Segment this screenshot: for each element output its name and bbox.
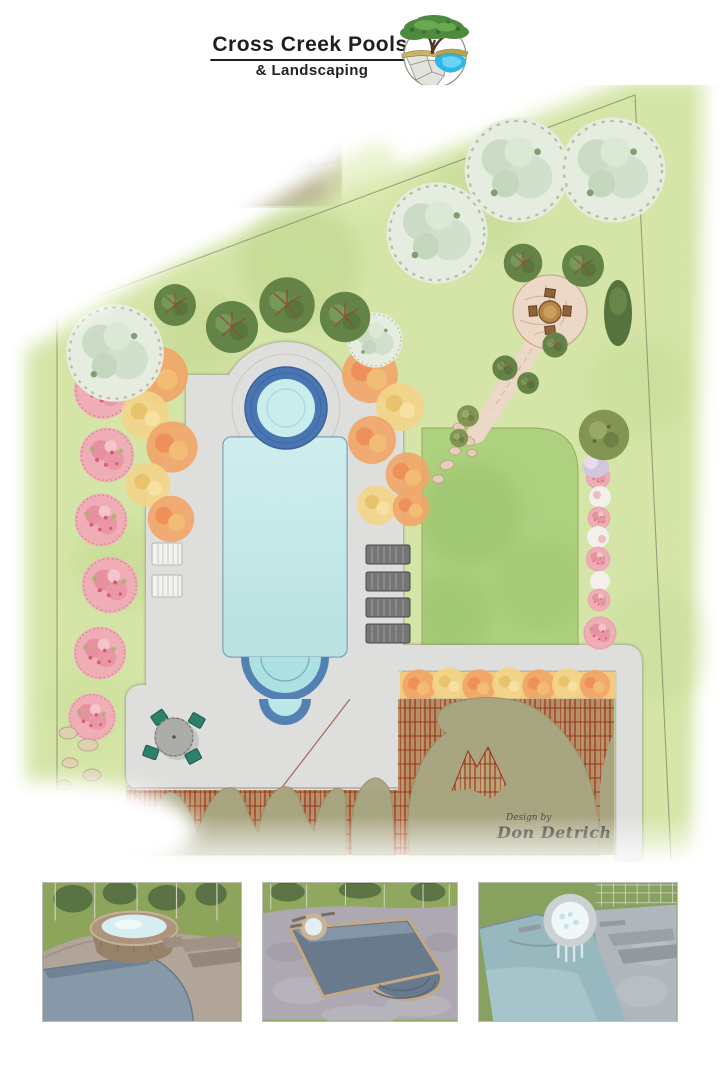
- render-spa-corner-view: [42, 882, 242, 1022]
- render-spa-corner-view-icon: [43, 883, 241, 1021]
- design-sheet: { "header": { "title": "Cross Creek Pool…: [0, 0, 720, 1080]
- company-logo: [388, 10, 482, 90]
- oak-tree-pond-flagstone-logo-icon: [388, 10, 482, 90]
- site-plan-drawing: Design by Don Detrich: [0, 85, 720, 885]
- brand-subtitle: & Landscaping: [210, 62, 413, 79]
- landscape-plan: Design by Don Detrich: [0, 85, 720, 885]
- brand-title: Cross Creek Pools: [210, 33, 413, 61]
- render-spa-filled-view-icon: [479, 883, 677, 1021]
- render-spa-filled-view: [478, 882, 678, 1022]
- render-pool-length-view: [262, 882, 458, 1022]
- brand-block: Cross Creek Pools & Landscaping: [210, 33, 413, 79]
- render-pool-length-view-icon: [263, 883, 457, 1021]
